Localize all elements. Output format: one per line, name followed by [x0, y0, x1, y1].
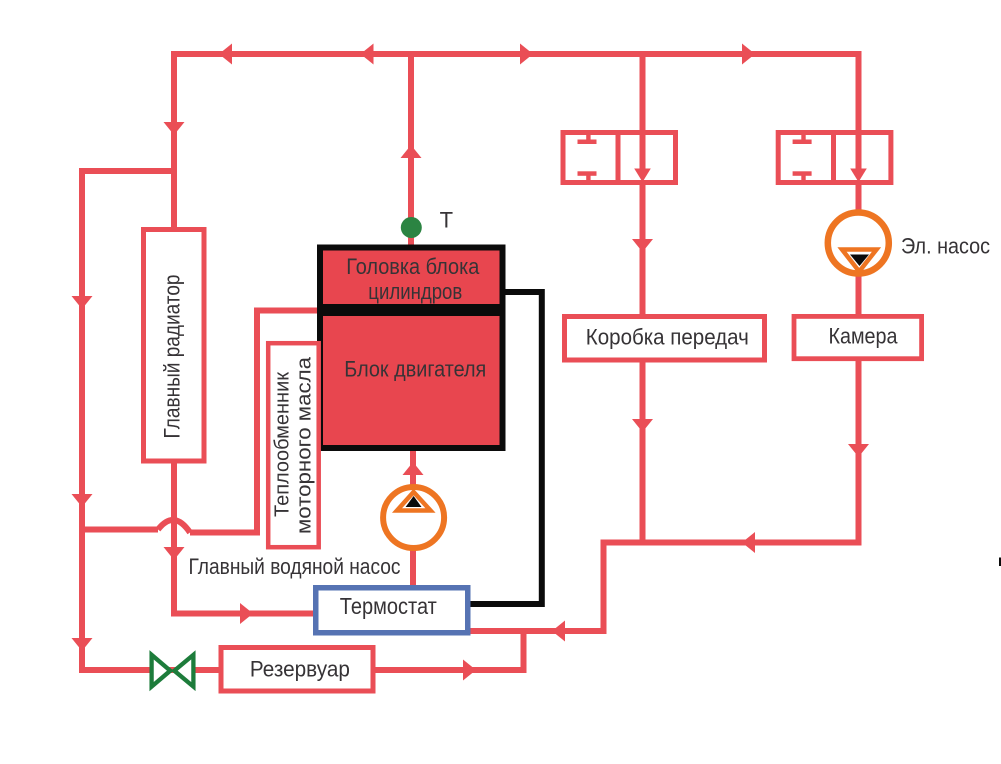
- svg-text:Т: Т: [440, 208, 453, 233]
- svg-text:цилиндров: цилиндров: [368, 279, 462, 304]
- svg-text:Теплообменник: Теплообменник: [272, 372, 294, 517]
- svg-text:Камера: Камера: [829, 324, 899, 349]
- svg-text:Коробка передач: Коробка передач: [586, 325, 749, 350]
- svg-text:Главный радиатор: Главный радиатор: [160, 275, 185, 439]
- svg-text:Термостат: Термостат: [340, 593, 437, 619]
- svg-text:Эл. насос: Эл. насос: [901, 234, 990, 259]
- svg-text:моторного масла: моторного масла: [294, 356, 316, 534]
- svg-text:Главный водяной насос: Главный водяной насос: [189, 554, 401, 579]
- svg-text:Резервуар: Резервуар: [250, 657, 350, 682]
- svg-text:Головка блока: Головка блока: [346, 254, 480, 279]
- svg-text:Блок двигателя: Блок двигателя: [344, 357, 486, 382]
